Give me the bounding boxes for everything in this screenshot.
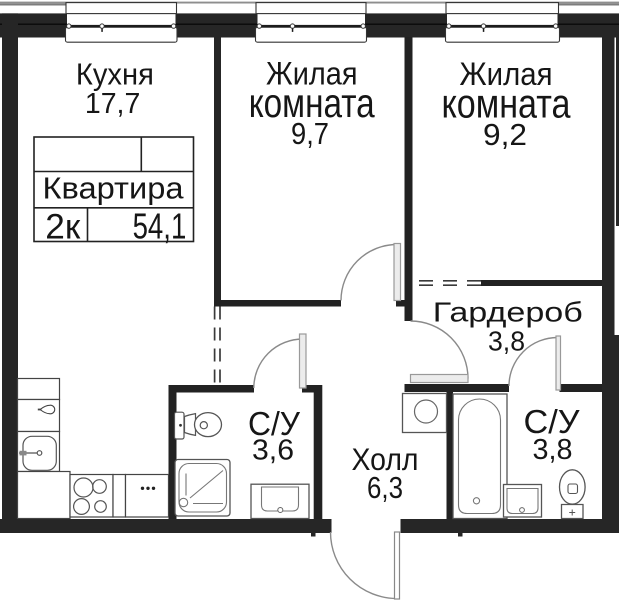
- svg-text:54,1: 54,1: [133, 205, 187, 246]
- svg-text:9,2: 9,2: [483, 117, 527, 152]
- svg-text:17,7: 17,7: [85, 88, 141, 120]
- svg-text:6,3: 6,3: [367, 470, 403, 505]
- svg-text:3,8: 3,8: [488, 326, 525, 357]
- svg-text:Кухня: Кухня: [76, 58, 154, 92]
- svg-text:9,7: 9,7: [291, 116, 329, 151]
- svg-text:3,8: 3,8: [533, 434, 573, 466]
- svg-text:3,6: 3,6: [252, 435, 294, 467]
- svg-text:Гардероб: Гардероб: [433, 297, 583, 328]
- svg-text:Квартира: Квартира: [43, 171, 185, 206]
- svg-text:2к: 2к: [45, 206, 80, 246]
